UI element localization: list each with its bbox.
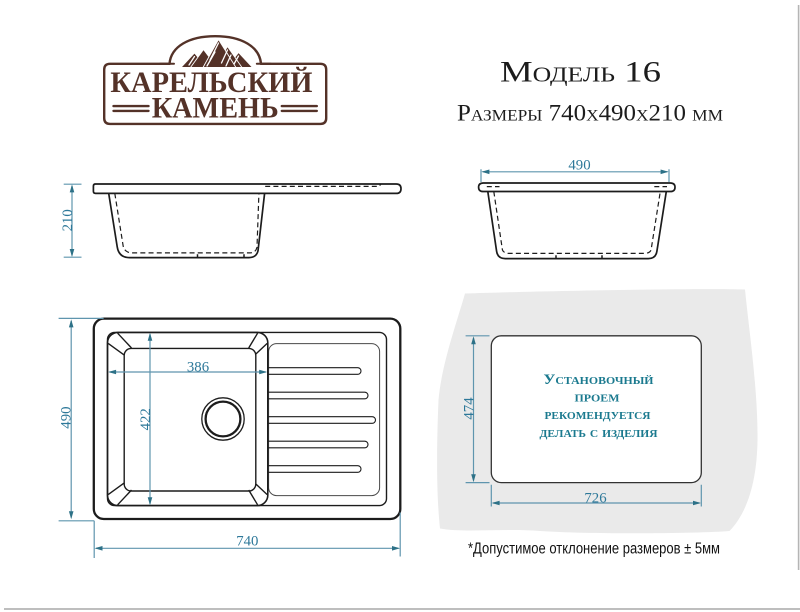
svg-text:*Допустимое отклонение размеро: *Допустимое отклонение размеров ± 5мм [468,541,720,558]
svg-text:делать с изделия: делать с изделия [540,425,658,441]
svg-text:386: 386 [187,359,209,375]
svg-text:проем: проем [575,390,621,406]
svg-text:474: 474 [461,397,477,420]
svg-text:КАМЕНЬ: КАМЕНЬ [152,92,279,125]
svg-text:726: 726 [584,490,606,506]
svg-text:422: 422 [138,408,154,430]
svg-text:490: 490 [568,158,590,174]
svg-text:Модель 16: Модель 16 [500,56,661,89]
svg-text:рекомендуется: рекомендуется [545,407,651,423]
svg-text:Размеры 740х490х210 мм: Размеры 740х490х210 мм [457,101,723,126]
svg-text:Установочный: Установочный [544,372,654,388]
svg-text:210: 210 [60,209,76,231]
svg-text:490: 490 [59,406,75,428]
svg-text:740: 740 [236,533,258,549]
